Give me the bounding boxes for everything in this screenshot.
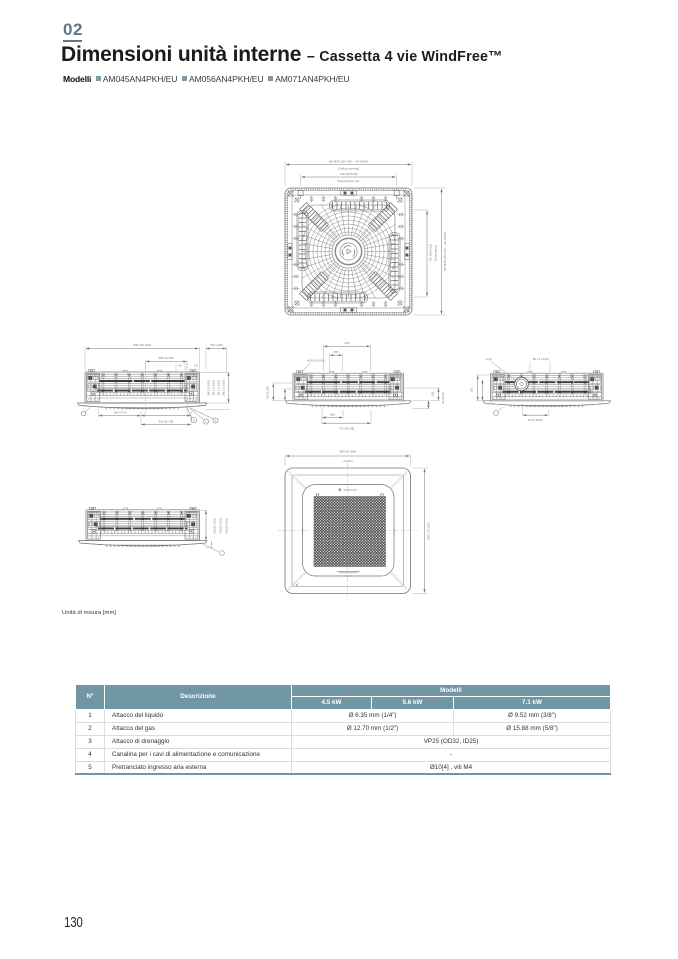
svg-text:2: 2: [205, 420, 207, 424]
svg-text:35 (1-3/8): 35 (1-3/8): [210, 343, 222, 347]
svg-text:256 (10-1/16): 256 (10-1/16): [213, 518, 217, 534]
svg-text:(35): (35): [431, 392, 435, 397]
svg-text:771 (30-3/8): 771 (30-3/8): [339, 427, 354, 431]
svg-text:950 (37-3/8): 950 (37-3/8): [340, 449, 356, 453]
svg-text:867/870 (28-7/16 ~ 30-15/16): 867/870 (28-7/16 ~ 30-15/16): [329, 160, 368, 164]
svg-text:718 (28-5/16): 718 (28-5/16): [429, 244, 433, 262]
svg-text:ø8 1/8 (1-3/16): ø8 1/8 (1-3/16): [307, 359, 324, 363]
svg-text:130 (5-1/8): 130 (5-1/8): [266, 387, 270, 400]
svg-text:(Ceiling opening): (Ceiling opening): [338, 167, 359, 171]
svg-text:130: 130: [470, 387, 474, 392]
svg-text:. . .: . . .: [302, 584, 306, 587]
svg-text:281 (11-1/16): 281 (11-1/16): [222, 380, 226, 396]
svg-text:Sospensione: Sospensione: [434, 244, 438, 261]
svg-text:950 ( 37-3/8 ): 950 ( 37-3/8 ): [427, 522, 431, 540]
svg-text:256 (10-1/16): 256 (10-1/16): [219, 518, 223, 534]
svg-text:50: 50: [179, 364, 182, 368]
svg-text:295 (11-5/8): 295 (11-5/8): [158, 356, 173, 360]
svg-text:840 (33-1/16): 840 (33-1/16): [133, 343, 151, 347]
svg-text:1: 1: [193, 418, 195, 422]
svg-text:(98): (98): [330, 413, 335, 417]
svg-text:50 (1-15/16): 50 (1-15/16): [528, 418, 543, 422]
svg-text:281 (11-1/16): 281 (11-1/16): [207, 380, 211, 396]
svg-text:SAMSUNG: SAMSUNG: [344, 488, 357, 492]
svg-text:Sospensione unit.: Sospensione unit.: [337, 179, 359, 183]
svg-text:(2): (2): [194, 364, 197, 368]
svg-text:(88): (88): [334, 350, 339, 354]
svg-text:ø (0): ø (0): [486, 357, 492, 361]
svg-text:867/870 (28-7/16 ~ 30-15/16): 867/870 (28-7/16 ~ 30-15/16): [443, 232, 447, 271]
svg-text:184 (7-1/4): 184 (7-1/4): [113, 410, 126, 414]
svg-text:281 (11-1/16): 281 (11-1/16): [217, 380, 221, 396]
svg-text:256 (10-1/16): 256 (10-1/16): [225, 518, 229, 534]
svg-text:3: 3: [215, 419, 217, 423]
svg-text:718 (28-5/16): 718 (28-5/16): [339, 172, 357, 176]
svg-text:360: 360: [344, 341, 349, 345]
svg-text:281 (11-1/16): 281 (11-1/16): [212, 380, 216, 396]
svg-text:20 (13-16): 20 (13-16): [441, 392, 445, 404]
svg-text:302 (11-7/8): 302 (11-7/8): [159, 419, 174, 423]
svg-text:88 1.5 (-1/16): 88 1.5 (-1/16): [533, 357, 549, 361]
